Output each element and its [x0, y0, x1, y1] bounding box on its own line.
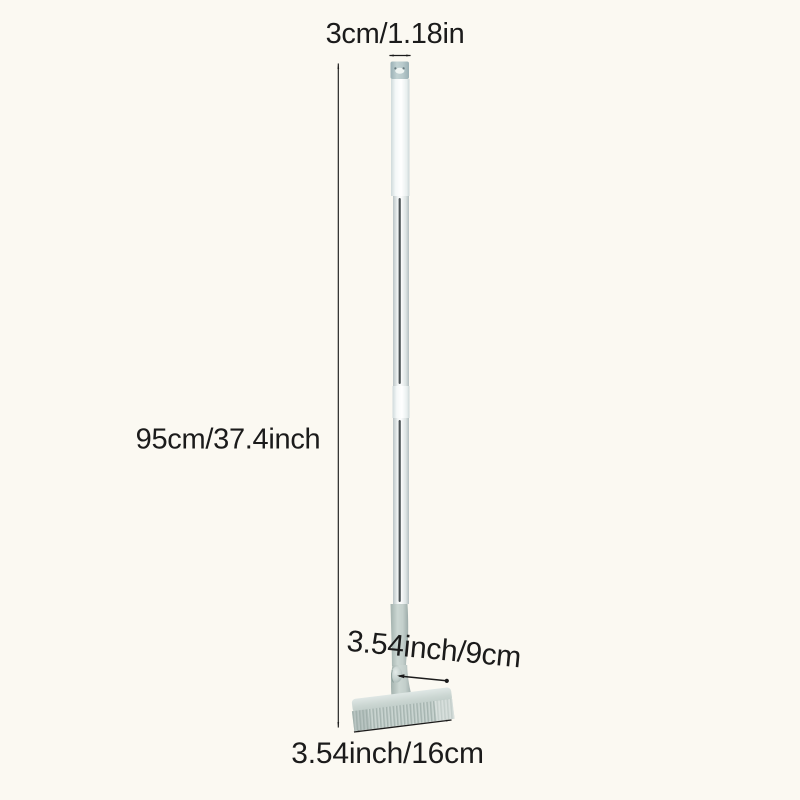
svg-text:95cm/37.4inch: 95cm/37.4inch: [136, 424, 321, 456]
svg-text:3cm/1.18in: 3cm/1.18in: [326, 18, 465, 50]
svg-text:3.54inch/16cm: 3.54inch/16cm: [291, 737, 484, 770]
